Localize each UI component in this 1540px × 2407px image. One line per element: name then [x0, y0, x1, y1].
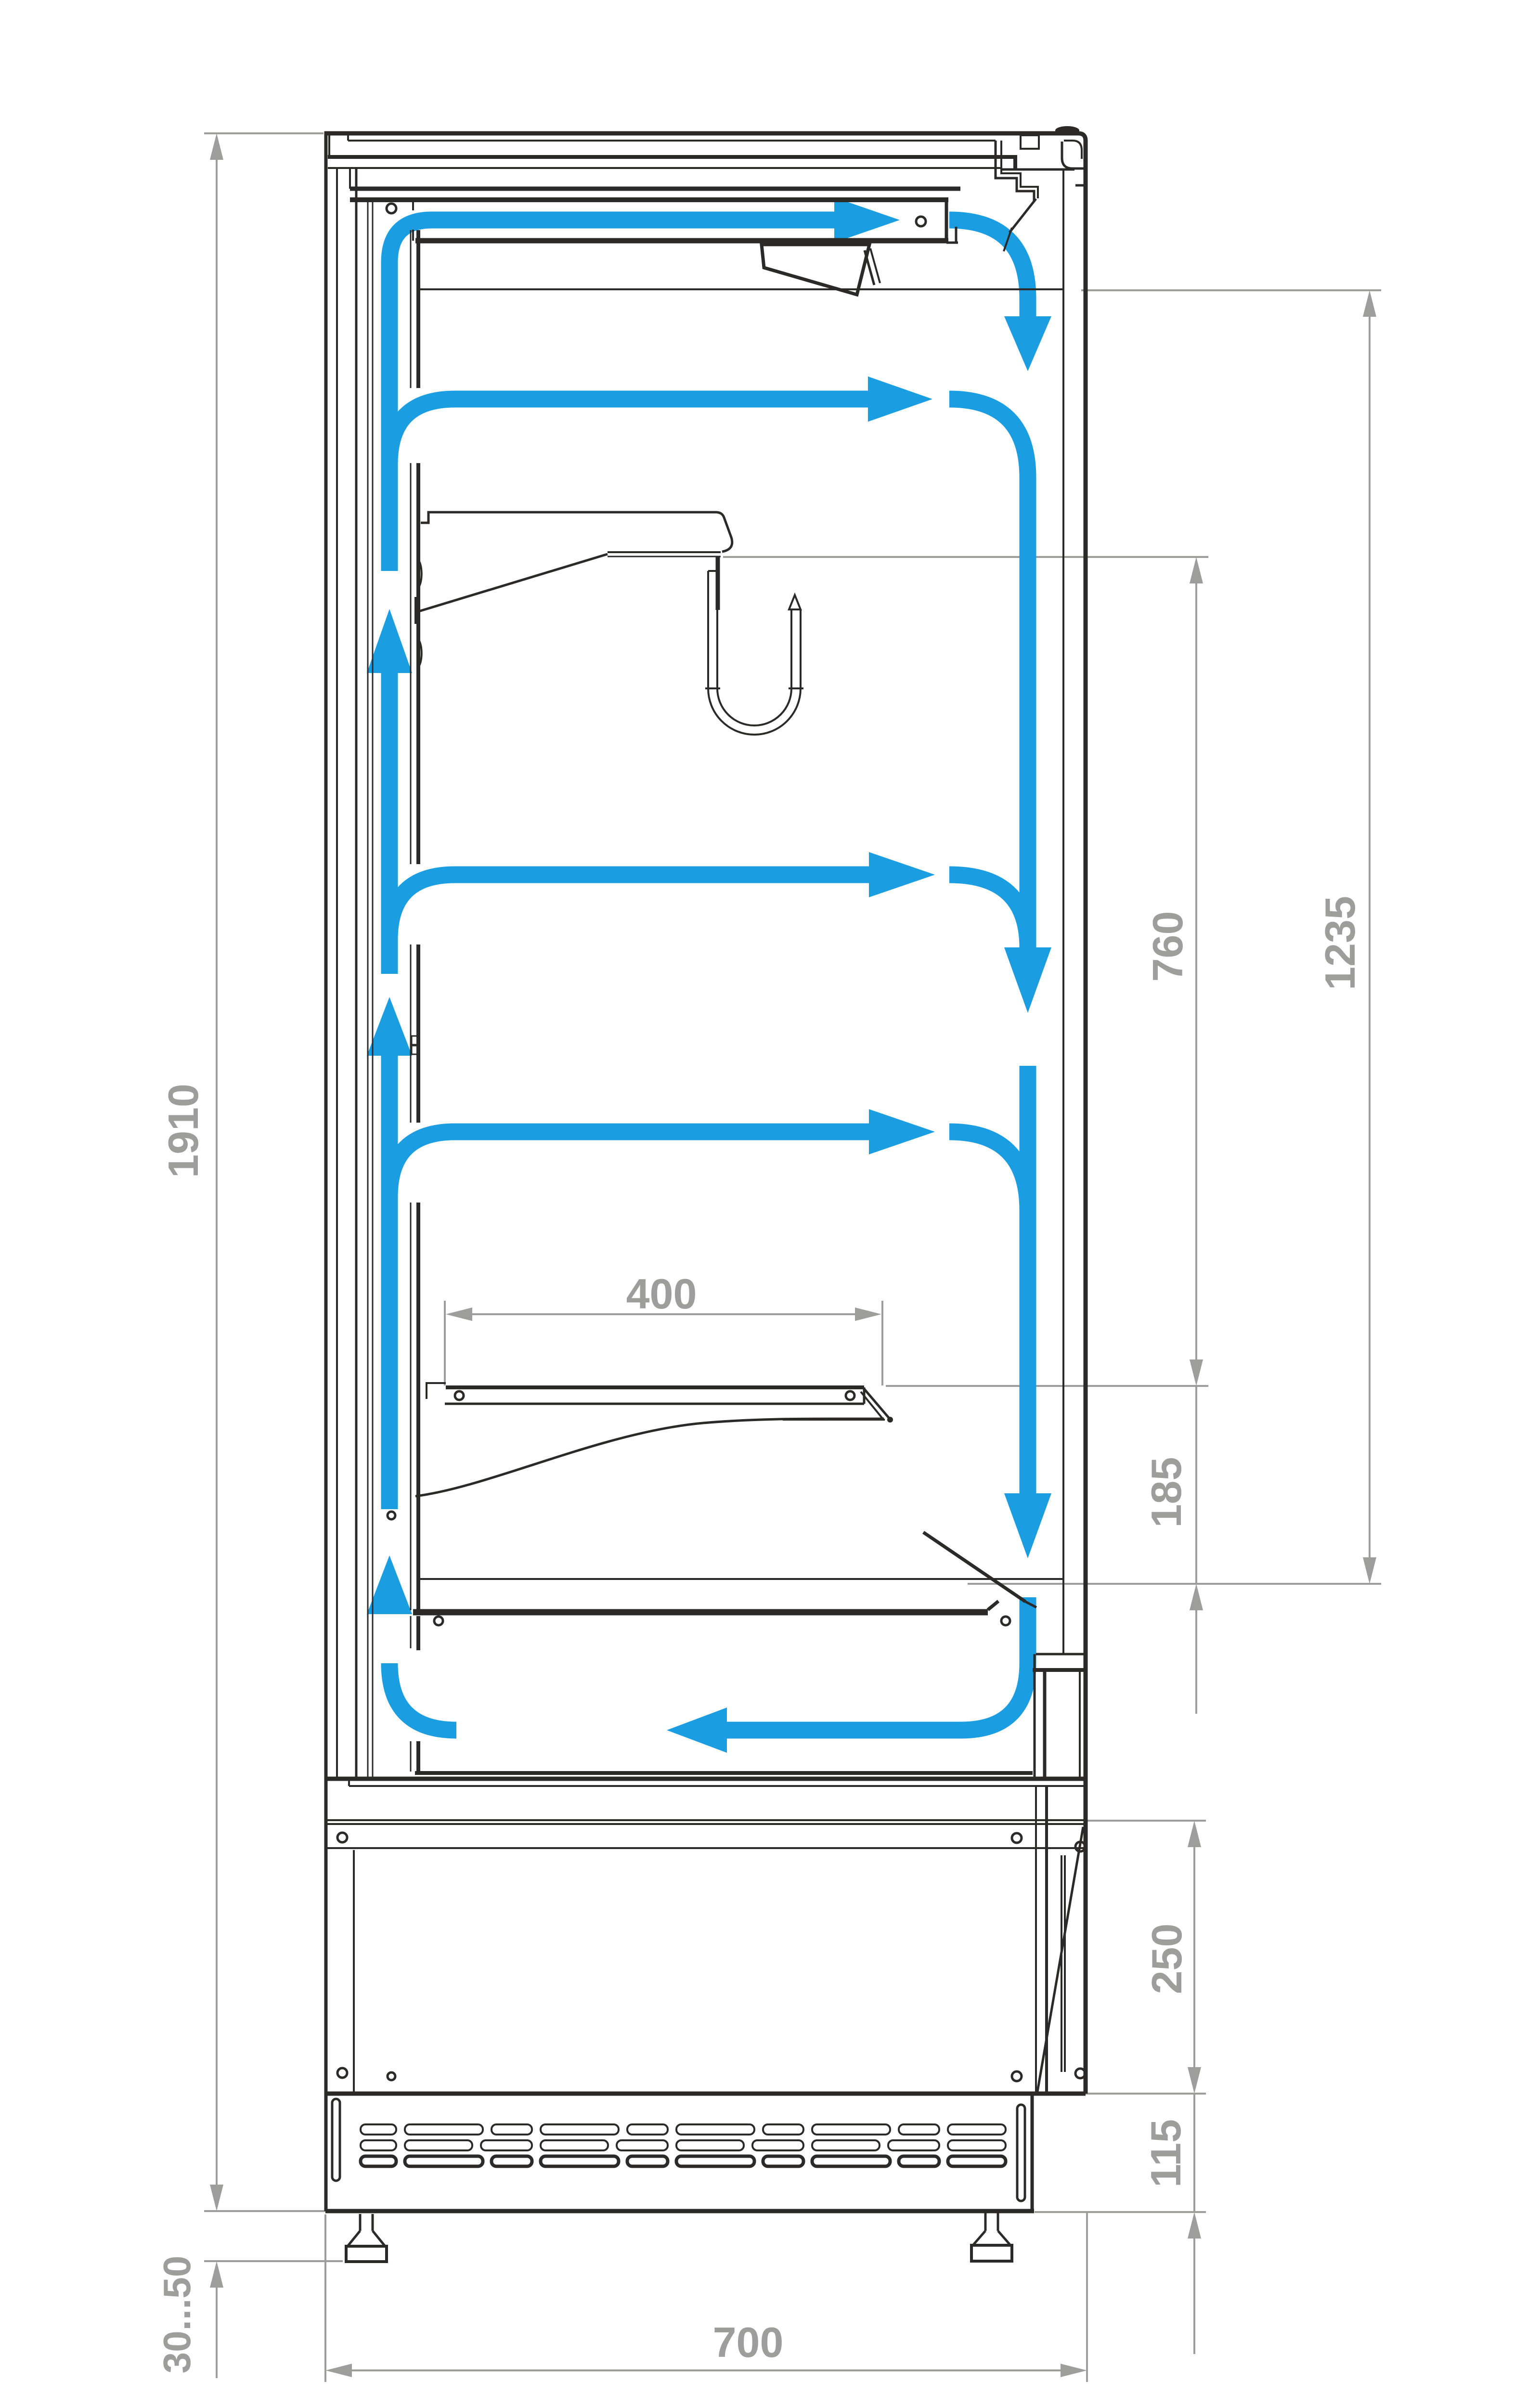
svg-text:115: 115: [1142, 2119, 1190, 2187]
svg-text:1910: 1910: [159, 1084, 207, 1178]
svg-text:185: 185: [1142, 1457, 1190, 1528]
svg-text:400: 400: [626, 1270, 697, 1318]
svg-text:760: 760: [1144, 911, 1191, 982]
svg-text:700: 700: [713, 2318, 784, 2366]
svg-text:30...50: 30...50: [155, 2256, 198, 2374]
svg-text:250: 250: [1143, 1924, 1191, 1994]
svg-text:1235: 1235: [1316, 896, 1364, 990]
